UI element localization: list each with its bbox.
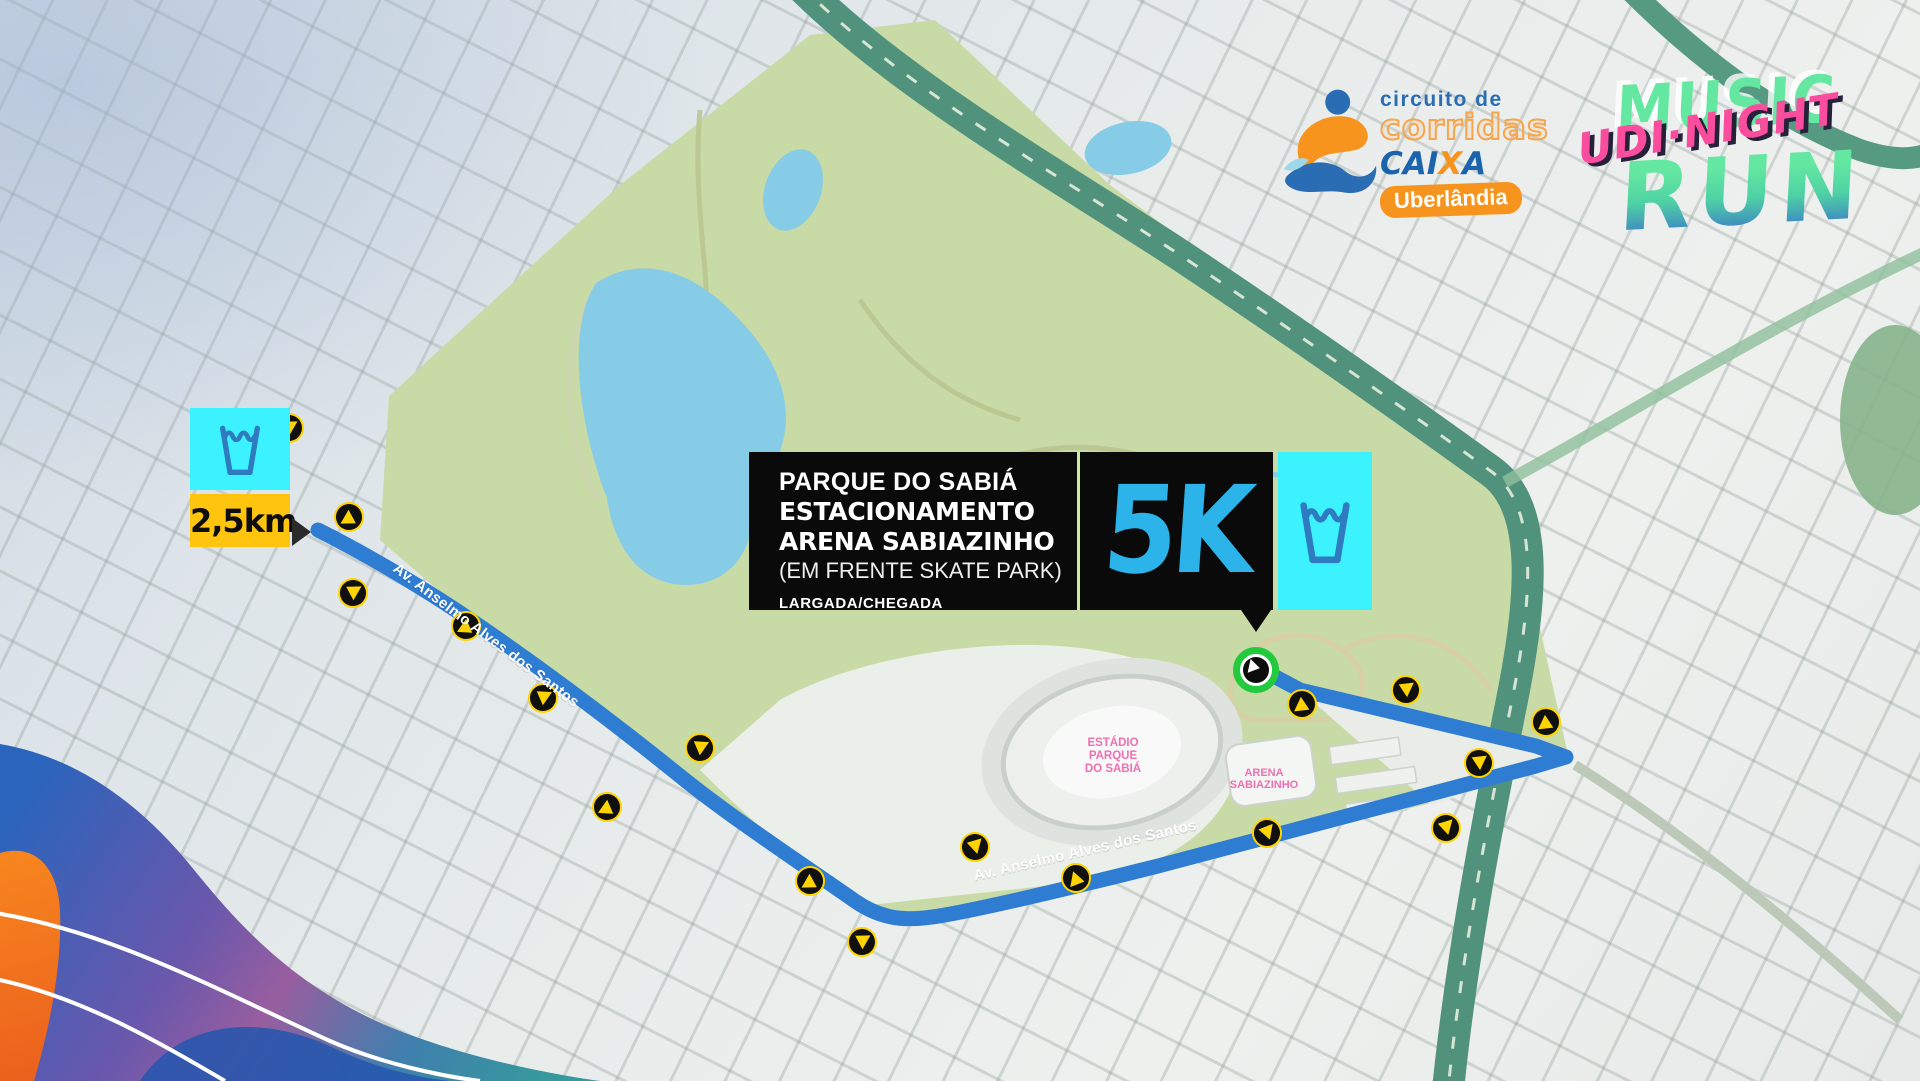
water-cup-icon [1292, 494, 1358, 568]
km-2-5-label: 2,5km [190, 502, 296, 540]
corner-wave-decoration [0, 581, 600, 1081]
location-panel: PARQUE DO SABIÁ ESTACIONAMENTO ARENA SAB… [749, 452, 1077, 610]
distance-panel: 5K [1080, 452, 1273, 610]
water-cup-icon [213, 419, 267, 479]
direction-arrow-icon [598, 800, 618, 821]
caixa-brand: CAIXA [1380, 147, 1580, 181]
direction-arrow-icon [1538, 715, 1557, 735]
km-badge-pointer [292, 518, 311, 546]
direction-arrow-icon [341, 510, 360, 530]
km-2-5-badge: 2,5km [190, 494, 290, 547]
circuito-caixa-logo: circuito de corridas CAIXA Uberlândia [1282, 80, 1582, 230]
location-line4: (EM FRENTE SKATE PARK) [779, 557, 1077, 585]
runner-icon [1282, 86, 1378, 198]
direction-arrow-icon [965, 835, 982, 854]
circuit-logo-text: circuito de corridas CAIXA Uberlândia [1380, 88, 1580, 216]
start-finish-info-panel: PARQUE DO SABIÁ ESTACIONAMENTO ARENA SAB… [749, 452, 1372, 610]
stadium-label-line1: ESTÁDIO [1058, 737, 1168, 750]
start-finish-label: LARGADA/CHEGADA [779, 595, 1077, 612]
direction-arrow-icon [1294, 697, 1313, 717]
direction-arrow-icon [1070, 871, 1086, 889]
distance-label: 5K [1099, 461, 1254, 601]
stadium-label-line2: PARQUE [1058, 750, 1168, 763]
start-finish-marker [1233, 647, 1279, 693]
stadium-label: ESTÁDIO PARQUE DO SABIÁ [1058, 737, 1168, 776]
direction-arrow-icon [802, 874, 821, 894]
direction-arrow-icon [851, 929, 870, 949]
udi-night-run-logo: MUSIC RUN UDI·NIGHT [1588, 60, 1878, 285]
panel-pointer-to-start [1241, 610, 1271, 632]
arena-label: ARENA SABIAZINHO [1212, 767, 1316, 791]
location-line1: PARQUE DO SABIÁ [779, 467, 1077, 497]
city-pill: Uberlândia [1379, 182, 1522, 219]
water-station-2-5km [190, 408, 290, 490]
stadium-label-line3: DO SABIÁ [1058, 763, 1168, 776]
direction-arrow-icon [1468, 750, 1487, 770]
circuit-name: corridas [1380, 109, 1580, 147]
caixa-x: X [1438, 146, 1462, 182]
direction-arrow-icon [1257, 822, 1273, 840]
direction-arrow-icon [1395, 677, 1414, 697]
location-line3: ARENA SABIAZINHO [779, 527, 1077, 557]
direction-arrow-icon [689, 735, 709, 756]
caixa-prefix: CAI [1380, 146, 1438, 182]
direction-arrow-icon [1436, 816, 1453, 835]
arena-label-line2: SABIAZINHO [1212, 779, 1316, 791]
location-line2: ESTACIONAMENTO [779, 497, 1077, 527]
caixa-suffix: A [1462, 146, 1486, 182]
water-station-start [1278, 452, 1372, 610]
race-course-map: Av. Anselmo Alves dos Santos Av. Anselmo… [0, 0, 1920, 1081]
arena-label-line1: ARENA [1212, 767, 1316, 779]
